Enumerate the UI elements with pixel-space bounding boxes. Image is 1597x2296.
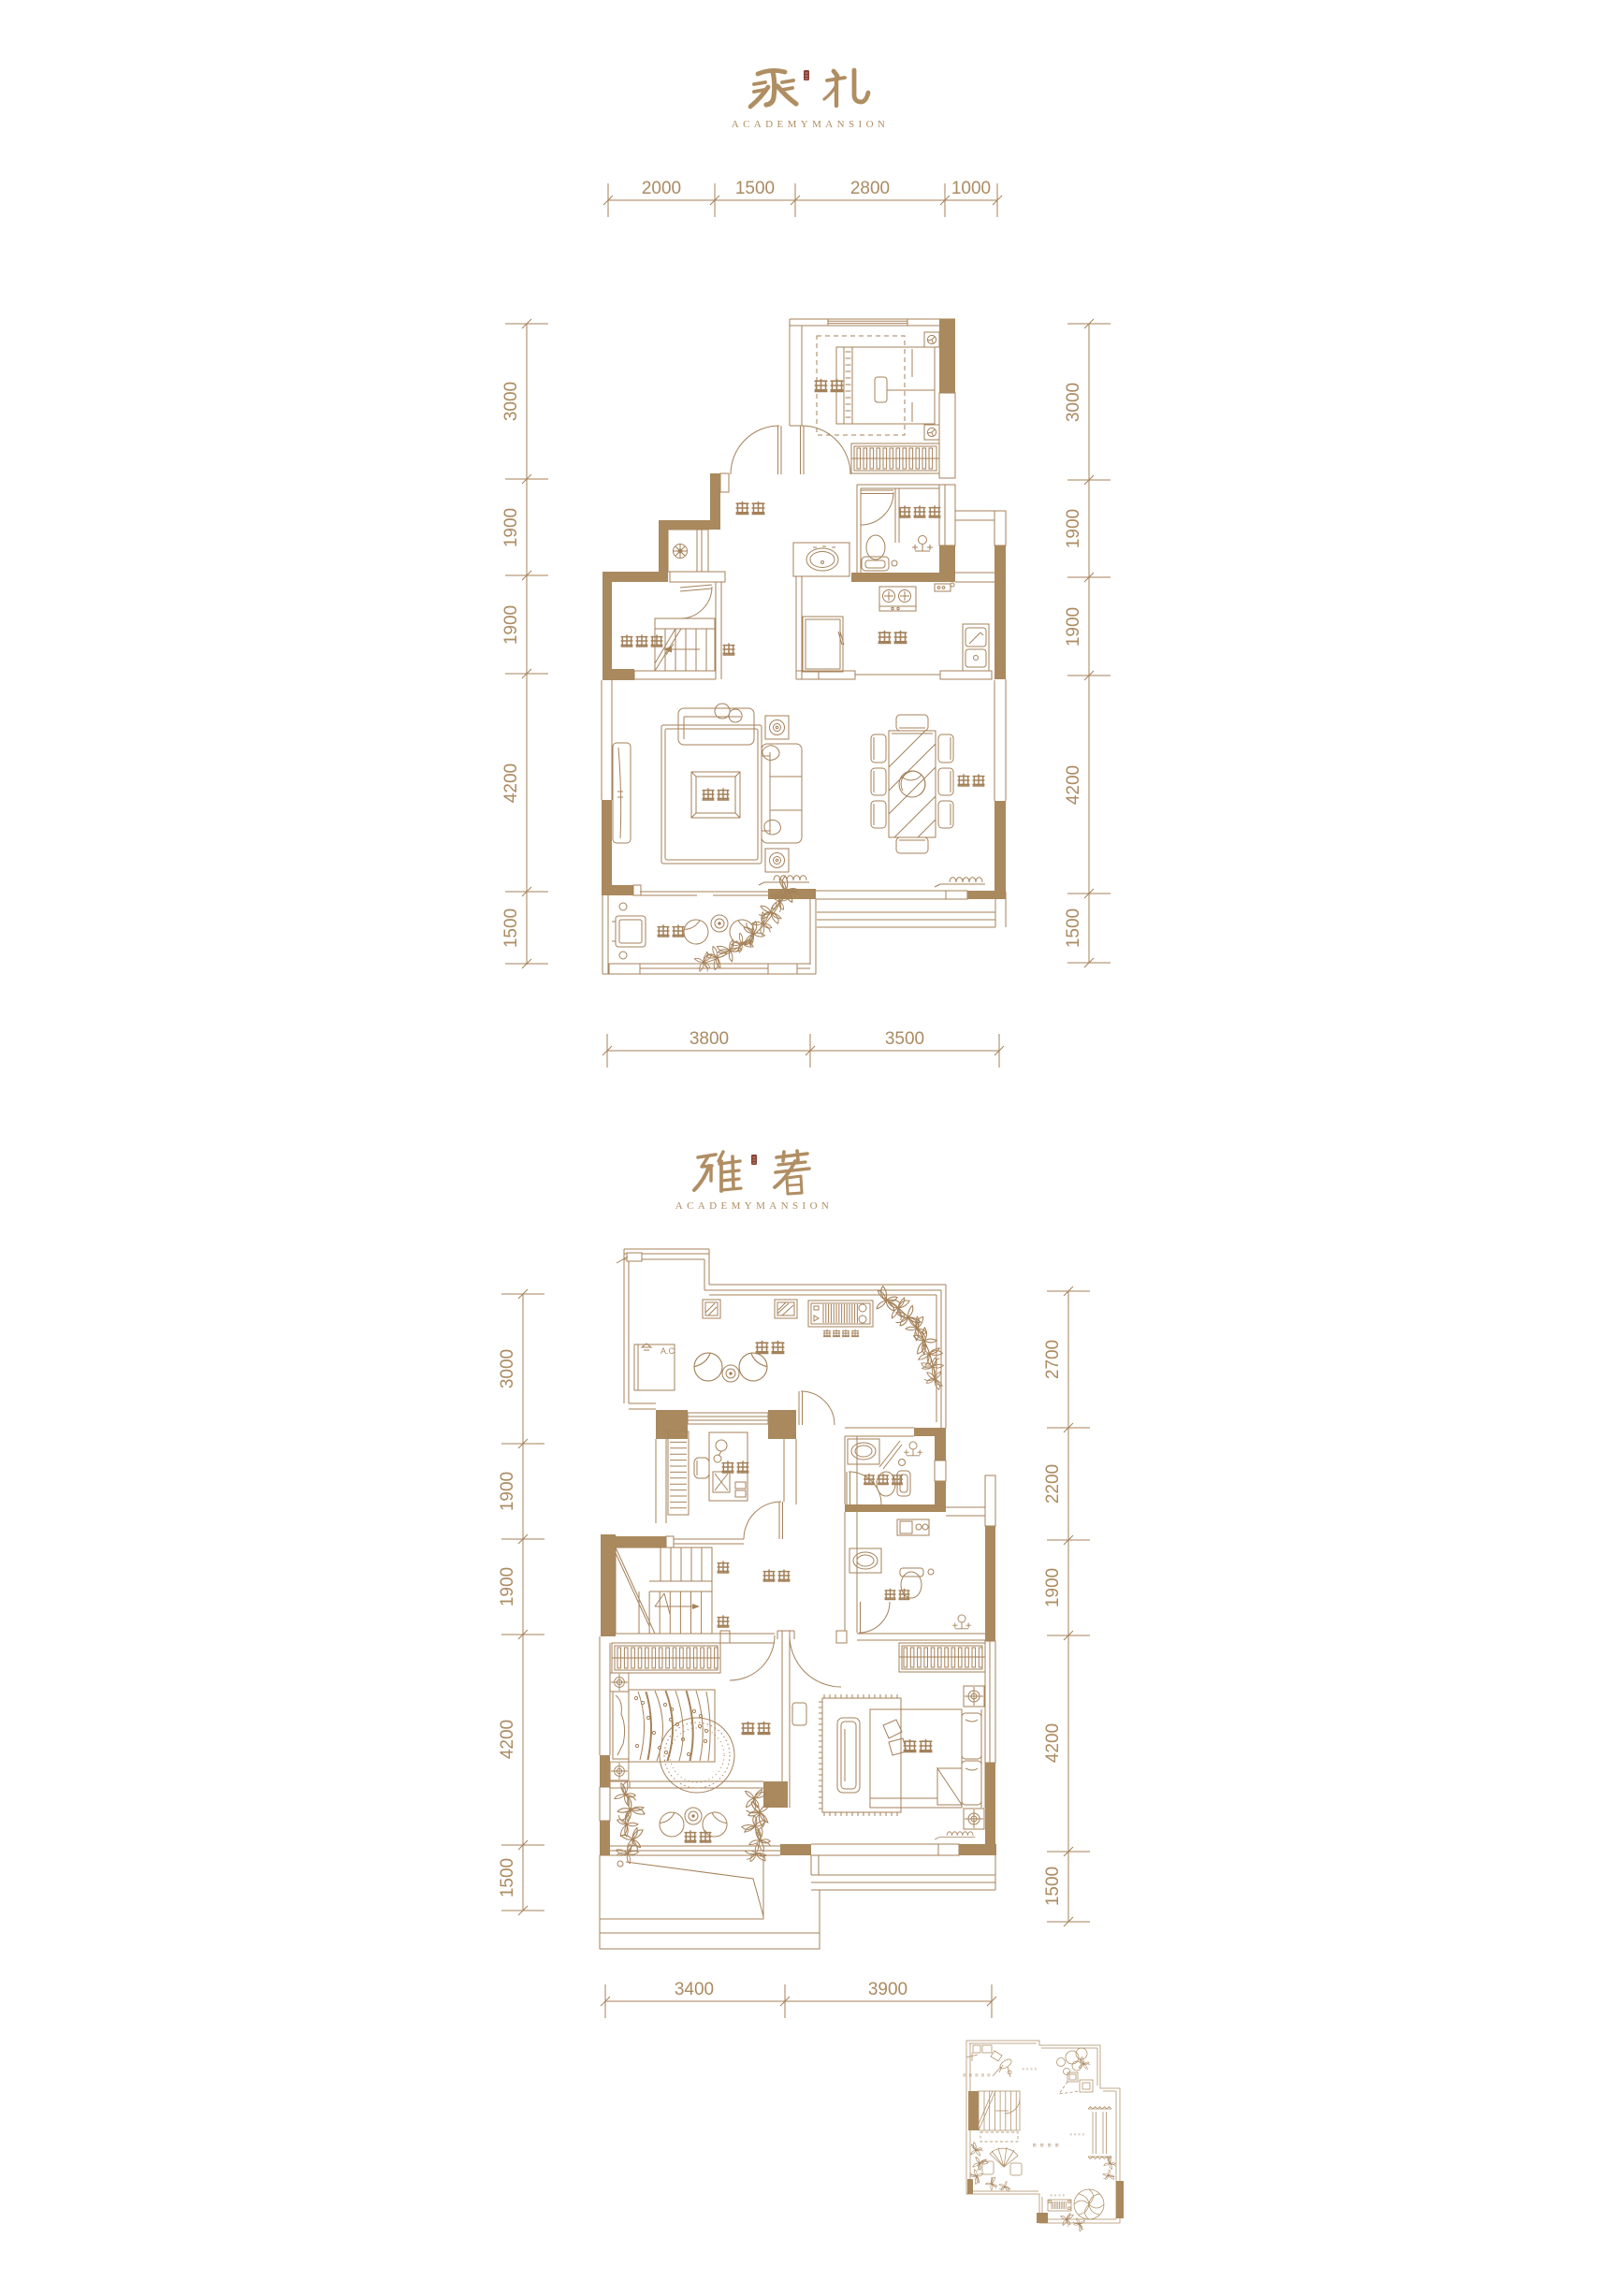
svg-text:2800: 2800 — [850, 179, 890, 198]
svg-text:1900: 1900 — [1043, 1568, 1063, 1607]
svg-text:1900: 1900 — [498, 1472, 517, 1511]
svg-text:ACADEMYMANSION: ACADEMYMANSION — [675, 1200, 834, 1212]
svg-text:1900: 1900 — [501, 605, 521, 645]
svg-text:1900: 1900 — [498, 1567, 517, 1606]
svg-text:2200: 2200 — [1043, 1464, 1063, 1504]
svg-text:3000: 3000 — [498, 1349, 517, 1388]
svg-text:ACADEMYMANSION: ACADEMYMANSION — [732, 119, 890, 130]
svg-text:4200: 4200 — [1064, 765, 1083, 805]
svg-text:4200: 4200 — [498, 1720, 517, 1759]
svg-text:1500: 1500 — [501, 908, 521, 948]
svg-text:4200: 4200 — [1043, 1723, 1063, 1763]
svg-text:1500: 1500 — [1064, 908, 1083, 948]
svg-text:1900: 1900 — [1064, 607, 1083, 647]
svg-text:1000: 1000 — [951, 179, 991, 198]
svg-text:1500: 1500 — [735, 179, 775, 198]
svg-text:1900: 1900 — [1064, 509, 1083, 548]
svg-text:3000: 3000 — [501, 382, 521, 421]
svg-text:A.C: A.C — [661, 1346, 675, 1356]
svg-text:3900: 3900 — [868, 1980, 907, 1999]
svg-text:3500: 3500 — [885, 1029, 924, 1049]
svg-text:2000: 2000 — [642, 179, 681, 198]
svg-text:1500: 1500 — [498, 1858, 517, 1897]
svg-text:4200: 4200 — [501, 763, 521, 803]
svg-text:3400: 3400 — [675, 1980, 714, 1999]
svg-text:1500: 1500 — [1043, 1867, 1063, 1906]
svg-text:2700: 2700 — [1043, 1340, 1063, 1379]
svg-text:3800: 3800 — [690, 1029, 729, 1049]
svg-text:3000: 3000 — [1064, 383, 1083, 422]
svg-text:1900: 1900 — [501, 508, 521, 547]
